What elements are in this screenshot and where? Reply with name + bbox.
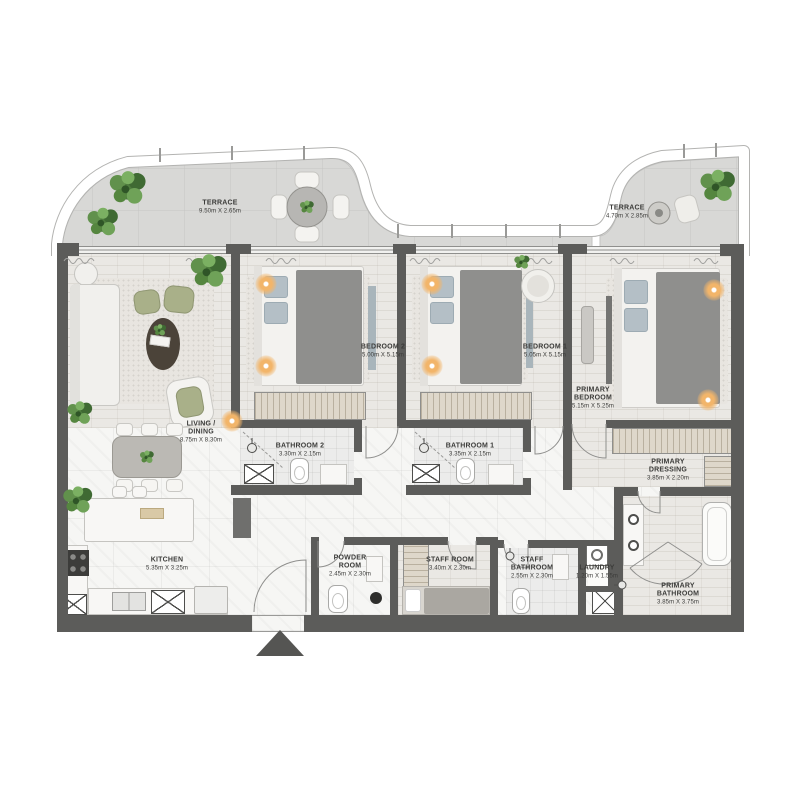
room-dims: 9.50m X 2.65m (199, 209, 241, 215)
room-name: BEDROOM 1 (523, 343, 567, 351)
plant-icon (88, 208, 118, 236)
room-name: TERRACE (199, 199, 241, 207)
wall-dressing-bottom (614, 487, 638, 496)
wall-bath2 (231, 420, 362, 428)
bathtub-inner (707, 507, 727, 561)
wardrobe-bedroom1 (420, 392, 532, 420)
label-staff-bathroom: STAFF BATHROOM 2.55m X 2.30m (511, 556, 553, 579)
bench-bar (606, 296, 612, 384)
shaft (244, 464, 274, 484)
sink-bowl (628, 514, 639, 525)
label-primary-bathroom: PRIMARY BATHROOM 3.85m X 3.75m (657, 582, 699, 605)
wall-laundry (582, 586, 614, 592)
window-primary (587, 246, 720, 254)
label-primary-bedroom: PRIMARY BEDROOM 5.15m X 5.25m (572, 386, 614, 409)
headboard (614, 268, 622, 408)
room-name: LAUNDRY (576, 564, 618, 572)
wall-powder (311, 537, 319, 617)
dining-chair (141, 423, 158, 436)
room-name: LIVING / DINING (180, 420, 222, 436)
toilet (512, 588, 530, 614)
room-dims: 2.55m X 2.30m (511, 574, 553, 580)
room-dims: 4.70m X 2.85m (606, 214, 648, 220)
window-bedroom2 (251, 246, 393, 254)
room-dims: 3.85m X 2.20m (647, 476, 689, 482)
staff-pillow (405, 589, 421, 612)
wall-bottom (57, 615, 744, 632)
vessel-sink (370, 592, 382, 604)
wardrobe-bedroom2 (254, 392, 366, 420)
wall-dressing-top (606, 420, 737, 428)
floor-plan: TERRACE 9.50m X 2.65m TERRACE 4.70m X 2.… (0, 0, 800, 800)
bar-stool (112, 486, 127, 498)
shaft (412, 464, 440, 483)
room-dims: 8.75m X 8.30m (180, 438, 222, 444)
blanket (296, 270, 362, 384)
room-name: BEDROOM 2 (361, 343, 405, 351)
kitchen-sink (112, 592, 146, 611)
wall-primary-bath-left (614, 496, 623, 615)
wall-bath1 (523, 420, 531, 452)
room-name: TERRACE (606, 204, 648, 212)
room-dims: 3.85m X 3.75m (657, 600, 699, 606)
fridge (194, 586, 228, 614)
entrance-arrow (256, 630, 304, 656)
window-living (79, 246, 226, 254)
wardrobe-dressing-top (612, 428, 733, 454)
round-chair-seat (527, 275, 549, 297)
parapet-ticks (160, 143, 716, 238)
blanket (460, 270, 522, 384)
label-bedroom-2: BEDROOM 2 5.00m X 5.15m (361, 343, 405, 358)
label-staff-room: STAFF ROOM 3.40m X 2.30m (426, 556, 474, 571)
ceiling-light (255, 355, 277, 377)
toilet (456, 458, 475, 484)
vanity-sink (552, 554, 569, 580)
console-table (581, 306, 594, 364)
room-dims: 5.35m X 3.25m (146, 566, 188, 572)
room-name: PRIMARY BATHROOM (657, 582, 699, 598)
sink-bowl (628, 540, 639, 551)
label-laundry: LAUNDRY 1.20m X 1.55m (576, 564, 618, 579)
terrace-dining-set (271, 172, 349, 242)
plant-icon (110, 171, 146, 204)
sofa-back (70, 284, 80, 406)
vanity-sink (320, 464, 347, 485)
room-dims: 5.05m X 5.15m (523, 353, 567, 359)
wall-top (720, 244, 744, 256)
ceiling-light (421, 273, 443, 295)
terrace-left-floor (62, 158, 592, 250)
wall-dressing-bottom (660, 487, 744, 496)
ceiling-light (703, 279, 725, 301)
staff-closet (403, 544, 429, 590)
entry-opening (252, 615, 304, 632)
room-name: KITCHEN (146, 556, 188, 564)
tall-cabinet (233, 498, 251, 538)
room-dims: 3.30m X 2.15m (276, 452, 325, 458)
armchair-cushion (175, 385, 206, 419)
pillow (264, 302, 288, 324)
wall-top (57, 243, 79, 256)
wall-staff (390, 537, 448, 545)
kitchen-island (84, 498, 194, 542)
room-dims: 3.40m X 2.30m (426, 566, 474, 572)
wall-bed2-bed1 (397, 252, 406, 428)
label-kitchen: KITCHEN 5.35m X 3.25m (146, 556, 188, 571)
pouf (163, 285, 196, 315)
ceiling-light (697, 389, 719, 411)
room-dims: 5.00m X 5.15m (361, 353, 405, 359)
room-dims: 2.45m X 2.30m (329, 572, 371, 578)
wall-powder (390, 537, 398, 617)
plant-icon (701, 170, 735, 201)
side-table (74, 262, 98, 286)
label-bathroom-1: BATHROOM 1 3.35m X 2.15m (446, 442, 495, 457)
pillow (430, 302, 454, 324)
dining-table (112, 436, 182, 478)
room-dims: 1.20m X 1.55m (576, 574, 618, 580)
dining-chair (116, 423, 133, 436)
room-name: STAFF BATHROOM (511, 556, 553, 572)
washer-drum (591, 549, 603, 561)
ceiling-light (255, 273, 277, 295)
ceiling-light (421, 355, 443, 377)
wall-bath1 (406, 420, 531, 428)
room-name: STAFF ROOM (426, 556, 474, 564)
pouf (132, 288, 161, 315)
wall-bath2 (231, 485, 362, 495)
wall-bed1-primary (563, 252, 572, 490)
staff-blanket (424, 588, 489, 614)
stove (67, 550, 89, 576)
dishwasher (151, 590, 185, 614)
wall-living-bed2 (231, 252, 240, 428)
wall-outer-right (731, 250, 744, 632)
toilet (290, 458, 309, 484)
vanity-sink (488, 464, 514, 485)
label-bathroom-2: BATHROOM 2 3.30m X 2.15m (276, 442, 325, 457)
ceiling-light (221, 410, 243, 432)
toilet (328, 585, 348, 613)
label-terrace-left: TERRACE 9.50m X 2.65m (199, 199, 241, 214)
label-powder-room: POWDER ROOM 2.45m X 2.30m (329, 554, 371, 577)
wall-staff (490, 537, 498, 617)
pillow (624, 280, 648, 304)
terrace-side-table (648, 194, 701, 225)
window-bedroom1 (416, 246, 558, 254)
room-name: PRIMARY DRESSING (647, 458, 689, 474)
cutting-board (140, 508, 164, 519)
room-name: POWDER ROOM (329, 554, 371, 570)
room-name: BATHROOM 2 (276, 442, 325, 450)
wall-outer-left (57, 243, 68, 632)
label-terrace-right: TERRACE 4.70m X 2.85m (606, 204, 648, 219)
wall-bath2 (354, 420, 362, 452)
label-living-dining: LIVING / DINING 8.75m X 8.30m (180, 420, 222, 443)
wall-bath1 (406, 485, 531, 495)
wardrobe-dressing-right (704, 456, 733, 487)
room-dims: 5.15m X 5.25m (572, 404, 614, 410)
wall-staff-bath (498, 540, 504, 548)
room-name: BATHROOM 1 (446, 442, 495, 450)
dining-chair (166, 479, 183, 492)
label-bedroom-1: BEDROOM 1 5.05m X 5.15m (523, 343, 567, 358)
pillow (624, 308, 648, 332)
bar-stool (132, 486, 147, 498)
room-dims: 3.35m X 2.15m (446, 452, 495, 458)
room-name: PRIMARY BEDROOM (572, 386, 614, 402)
label-primary-dressing: PRIMARY DRESSING 3.85m X 2.20m (647, 458, 689, 481)
